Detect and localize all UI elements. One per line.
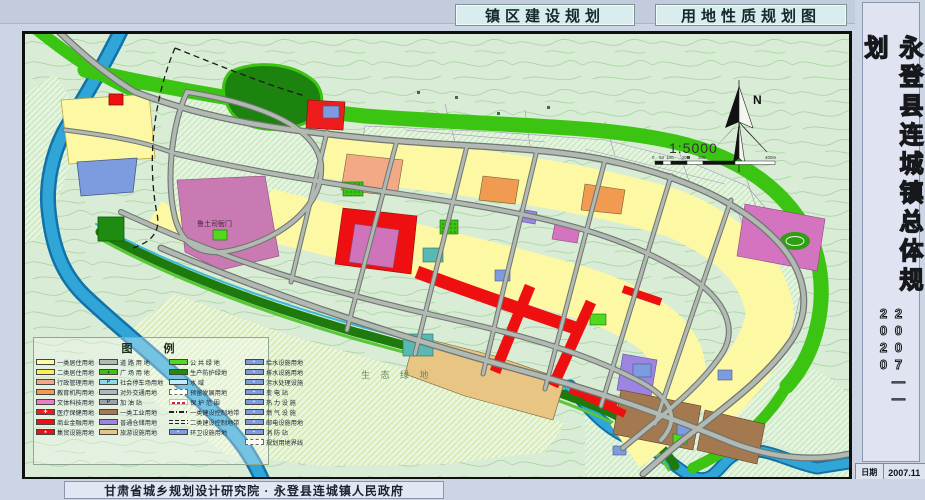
legend-item: 旅游设施用地 bbox=[99, 429, 166, 435]
legend-item: 普通仓储用地 bbox=[99, 419, 166, 425]
title-right: 用地性质规划图 bbox=[681, 5, 821, 26]
legend-item: 生产防护绿地 bbox=[169, 369, 242, 375]
scale-tick: 50 bbox=[659, 155, 665, 160]
eco-green-label: 生 态 绿 地 bbox=[361, 369, 433, 380]
heritage-label: 鲁土司衙门 bbox=[197, 219, 232, 228]
title-left: 镇区建设规划 bbox=[485, 5, 605, 26]
legend-swatch bbox=[99, 359, 118, 365]
legend-swatch bbox=[36, 419, 55, 425]
legend-item: 二类建设控制地带 bbox=[169, 419, 242, 425]
legend-item: 预留发展用地 bbox=[169, 389, 242, 395]
legend-item: 污水处理设施 bbox=[245, 379, 305, 385]
legend-swatch bbox=[245, 369, 264, 375]
legend-swatch bbox=[99, 419, 118, 425]
legend-item: 医疗保健用地 bbox=[36, 409, 96, 415]
scale-tick: 400m bbox=[765, 155, 777, 160]
legend-item: 加 油 站 bbox=[99, 399, 166, 405]
map-frame: 鲁土司衙门 生 态 绿 地 N 1:5000 bbox=[22, 31, 852, 480]
legend-item: 燃 气 设 施 bbox=[245, 409, 305, 415]
legend-column-2: 道 路 用 地 广 场 用 地 社会停车场用地 对外交通用地 加 油 站 一类工… bbox=[99, 359, 166, 445]
legend-item: 集贸设施用地 bbox=[36, 429, 96, 435]
legend-swatch bbox=[99, 379, 118, 385]
scale-tick: 100 bbox=[666, 155, 674, 160]
legend-swatch bbox=[99, 429, 118, 435]
drawing-title-box: 永登县连城镇总体规划 2007——2020 bbox=[862, 2, 920, 462]
legend-swatch bbox=[245, 379, 264, 385]
legend-swatch bbox=[245, 359, 264, 365]
legend-swatch bbox=[36, 379, 55, 385]
legend-swatch bbox=[36, 409, 55, 415]
planning-sheet: 镇区建设规划 用地性质规划图 bbox=[0, 0, 925, 500]
legend-item: 一类居住用地 bbox=[36, 359, 96, 365]
credit-text: 甘肃省城乡规划设计研究院 · 永登县连城镇人民政府 bbox=[64, 481, 444, 499]
legend-swatch bbox=[36, 359, 55, 365]
legend-item: 广 场 用 地 bbox=[99, 369, 166, 375]
legend-item: 邮电设施用地 bbox=[245, 419, 305, 425]
legend: 图 例 一类居住用地 二类居住用地 行政管理用地 教育机构用地 文体科技用地 医… bbox=[33, 337, 269, 465]
legend-item: 二类居住用地 bbox=[36, 369, 96, 375]
title-tab-landuse: 用地性质规划图 bbox=[655, 4, 847, 26]
legend-swatch bbox=[169, 420, 188, 424]
legend-swatch bbox=[36, 369, 55, 375]
legend-item: 一类工业用地 bbox=[99, 409, 166, 415]
scale-tick: 300 bbox=[698, 155, 706, 160]
legend-swatch bbox=[245, 399, 264, 405]
legend-swatch bbox=[169, 429, 188, 435]
north-label: N bbox=[753, 93, 762, 107]
legend-item: 道 路 用 地 bbox=[99, 359, 166, 365]
legend-item: 水 域 bbox=[169, 379, 242, 385]
legend-swatch bbox=[36, 429, 55, 435]
legend-item: 环卫设施用地 bbox=[169, 429, 242, 435]
legend-swatch bbox=[169, 369, 188, 375]
legend-item: 消 防 站 bbox=[245, 429, 305, 435]
drawing-years: 2007——2020 bbox=[876, 306, 906, 461]
legend-item: 商业金融用地 bbox=[36, 419, 96, 425]
legend-swatch bbox=[99, 409, 118, 415]
legend-item: 教育机构用地 bbox=[36, 389, 96, 395]
legend-swatch bbox=[169, 399, 188, 405]
legend-item: 公 共 绿 地 bbox=[169, 359, 242, 365]
legend-column-1: 一类居住用地 二类居住用地 行政管理用地 教育机构用地 文体科技用地 医疗保健用… bbox=[36, 359, 96, 445]
legend-item: 社会停车场用地 bbox=[99, 379, 166, 385]
legend-item: 保 护 范 围 bbox=[169, 399, 242, 405]
drawing-title: 永登县连城镇总体规划 bbox=[856, 35, 925, 300]
legend-item: 变 电 站 bbox=[245, 389, 305, 395]
legend-swatch bbox=[99, 369, 118, 375]
legend-swatch bbox=[99, 389, 118, 395]
scale-tick: 200 bbox=[682, 155, 690, 160]
legend-swatch bbox=[169, 411, 188, 413]
legend-swatch bbox=[245, 439, 264, 445]
legend-item: 一类建设控制地带 bbox=[169, 409, 242, 415]
legend-item: 对外交通用地 bbox=[99, 389, 166, 395]
legend-swatch bbox=[169, 379, 188, 385]
legend-swatch bbox=[245, 429, 264, 435]
footer: 甘肃省城乡规划设计研究院 · 永登县连城镇人民政府 bbox=[0, 479, 925, 500]
scale-text: 1:5000 bbox=[669, 140, 718, 156]
legend-swatch bbox=[245, 419, 264, 425]
legend-swatch bbox=[169, 359, 188, 365]
legend-title: 图 例 bbox=[44, 340, 266, 356]
legend-swatch bbox=[36, 389, 55, 395]
legend-swatch bbox=[245, 409, 264, 415]
legend-item: 行政管理用地 bbox=[36, 379, 96, 385]
legend-swatch bbox=[36, 399, 55, 405]
legend-swatch bbox=[245, 389, 264, 395]
legend-column-4: 给水设施用地 排水设施用地 污水处理设施 变 电 站 热 力 设 施 燃 气 设… bbox=[245, 359, 305, 445]
legend-item: 排水设施用地 bbox=[245, 369, 305, 375]
legend-swatch bbox=[169, 389, 188, 395]
legend-item: 给水设施用地 bbox=[245, 359, 305, 365]
legend-swatch bbox=[99, 399, 118, 405]
legend-item: 文体科技用地 bbox=[36, 399, 96, 405]
legend-column-3: 公 共 绿 地 生产防护绿地 水 域 预留发展用地 保 护 范 围 一类建设控制… bbox=[169, 359, 242, 445]
legend-item: 热 力 设 施 bbox=[245, 399, 305, 405]
legend-item: 规划用地界线 bbox=[245, 439, 305, 445]
sidebar: 永登县连城镇总体规划 2007——2020 日期 2007.11 图号 08 bbox=[855, 0, 925, 500]
title-tab-construction: 镇区建设规划 bbox=[455, 4, 635, 26]
